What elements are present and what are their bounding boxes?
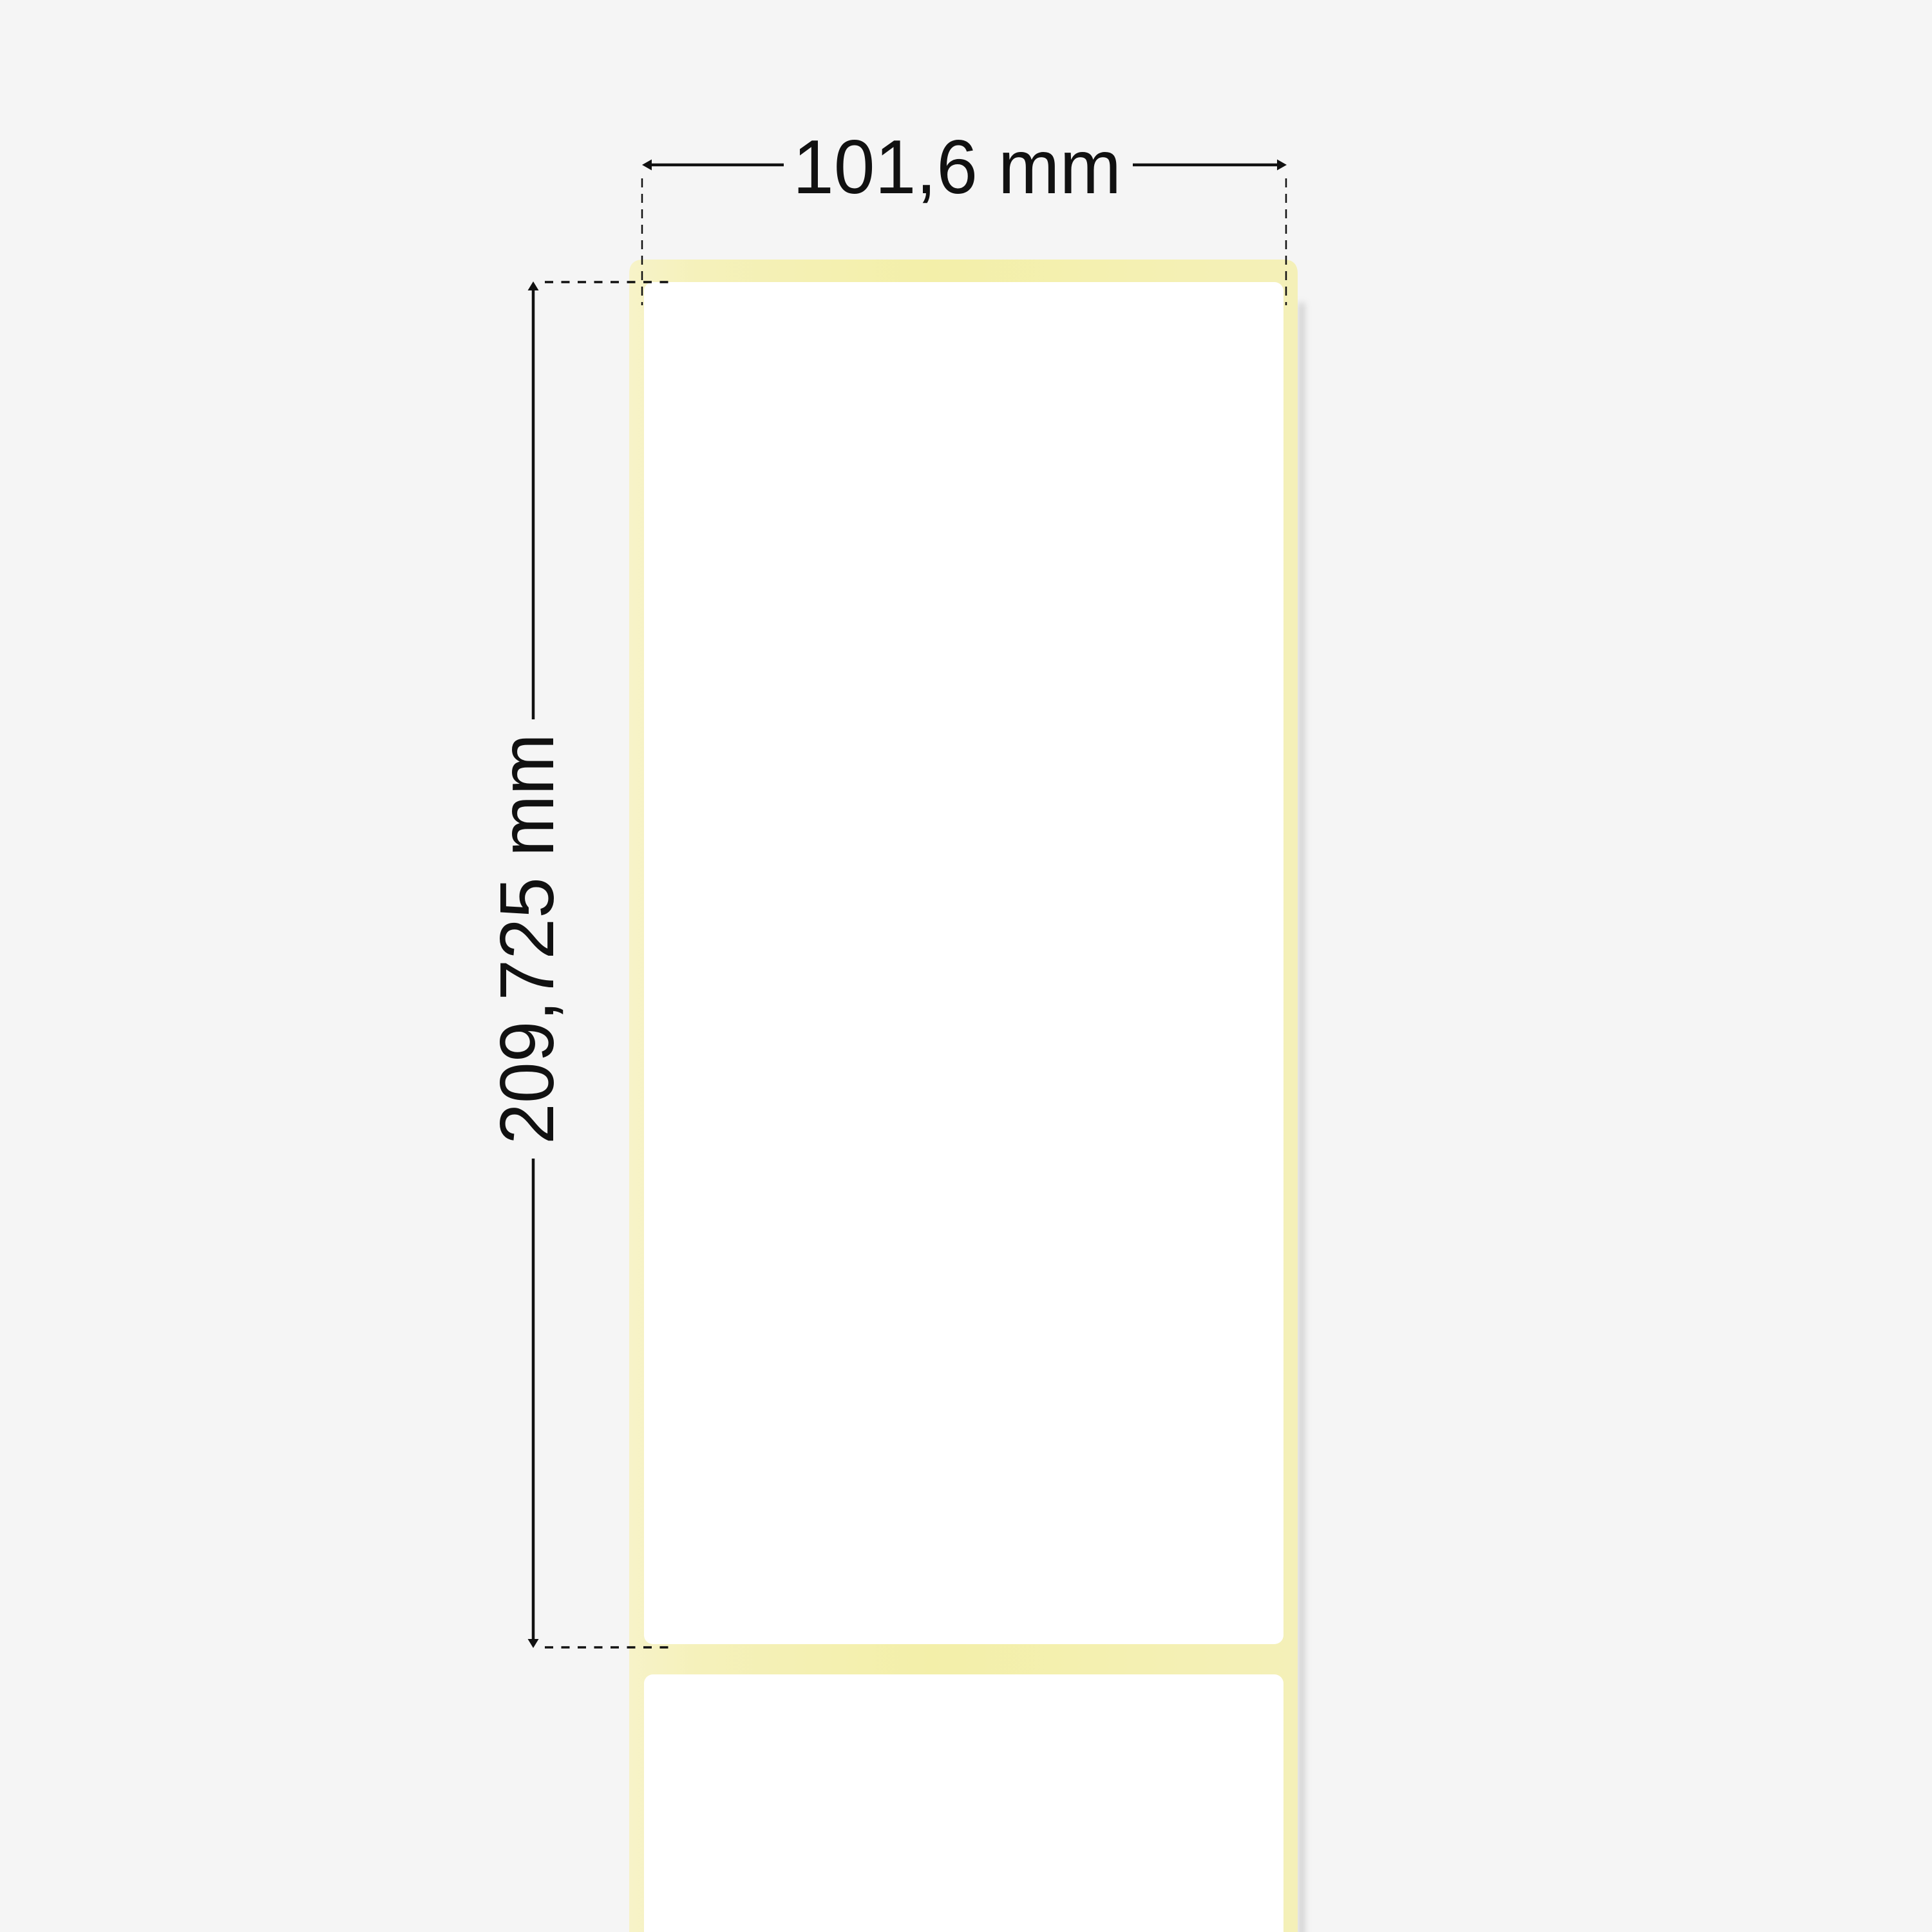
- svg-text:101,6 mm: 101,6 mm: [793, 124, 1121, 210]
- svg-text:209,725 mm: 209,725 mm: [484, 734, 570, 1144]
